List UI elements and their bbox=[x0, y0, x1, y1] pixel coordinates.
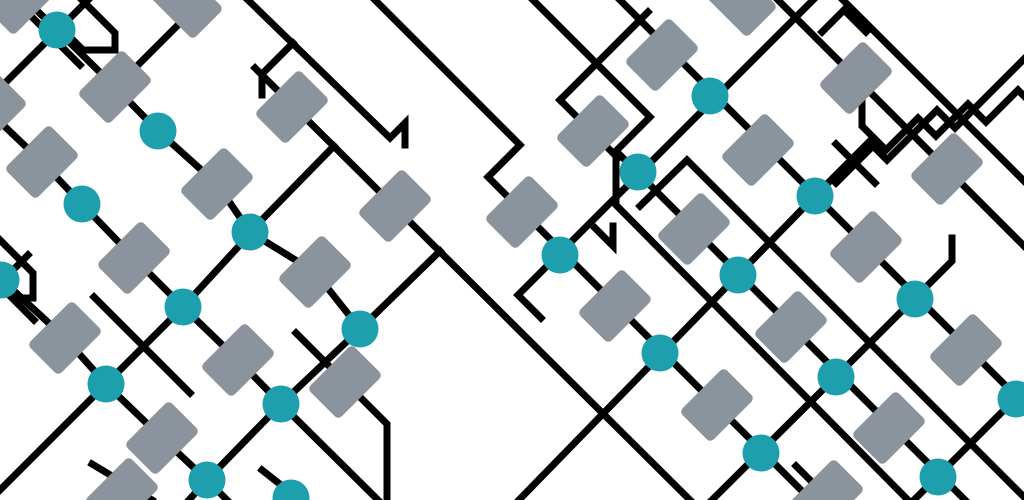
component-rect bbox=[720, 112, 796, 188]
node-circle bbox=[64, 186, 101, 223]
node-circle bbox=[140, 113, 177, 150]
node-circle bbox=[342, 311, 379, 348]
component-rect bbox=[702, 0, 778, 38]
node-circle bbox=[542, 237, 579, 274]
node-circle bbox=[642, 335, 679, 372]
component-rect bbox=[789, 458, 865, 500]
node-circle bbox=[165, 289, 202, 326]
node-circle bbox=[897, 281, 934, 318]
node-circle bbox=[263, 386, 300, 423]
node-circle bbox=[797, 178, 834, 215]
node-circle bbox=[920, 459, 957, 496]
node-circle bbox=[232, 214, 269, 251]
component-rects-layer bbox=[0, 0, 1004, 500]
component-rect bbox=[277, 234, 353, 310]
node-circle bbox=[620, 154, 657, 191]
node-circle bbox=[189, 462, 226, 499]
circuit-pattern-stage bbox=[0, 0, 1024, 500]
circuit-pattern-graphic bbox=[0, 0, 1024, 500]
node-circle bbox=[720, 257, 757, 294]
node-circle bbox=[88, 366, 125, 403]
node-circle bbox=[39, 12, 76, 49]
node-circle bbox=[692, 78, 729, 115]
trace-line bbox=[595, 226, 613, 246]
node-circle bbox=[818, 359, 855, 396]
component-rect bbox=[148, 0, 224, 40]
node-circle bbox=[743, 435, 780, 472]
